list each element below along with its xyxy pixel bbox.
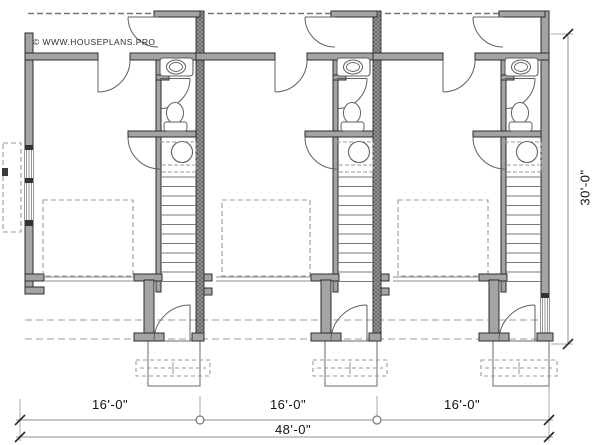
- right-window: [541, 293, 549, 339]
- entry-stoop: [313, 341, 387, 386]
- left-windows: [25, 145, 33, 226]
- unit-2: [196, 11, 387, 386]
- garage-door: [393, 277, 479, 281]
- dim-total-width: 48'-0": [253, 422, 333, 437]
- toilet-icon: [509, 103, 532, 132]
- toilet-icon: [164, 103, 187, 132]
- watermark: © WWW.HOUSEPLANS.PRO: [33, 37, 155, 47]
- water-heater-icon: [505, 142, 541, 173]
- unit-3: [373, 11, 557, 386]
- toilet-icon: [341, 103, 364, 132]
- garage-door: [44, 277, 134, 281]
- unit-1: [25, 11, 210, 386]
- party-wall-2: [373, 11, 381, 341]
- closet-door: [305, 17, 335, 47]
- utility-door: [473, 137, 505, 169]
- sink-icon: [337, 58, 370, 76]
- utility-door: [128, 137, 160, 169]
- garage-door: [216, 277, 311, 281]
- water-heater-icon: [160, 142, 196, 173]
- rear-room-door: [275, 60, 307, 92]
- sink-icon: [505, 58, 538, 76]
- stairs: [338, 177, 373, 282]
- floor-plan-page: © WWW.HOUSEPLANS.PRO 16'-0" 16'-0" 16'-0…: [0, 0, 600, 445]
- stairs: [506, 177, 541, 282]
- rear-room-door: [443, 60, 475, 92]
- utility-door: [305, 137, 337, 169]
- dim-unit-3-width: 16'-0": [422, 397, 502, 412]
- water-heater-icon: [337, 142, 373, 173]
- rear-room-door: [98, 60, 130, 92]
- floor-plan-drawing: [0, 0, 600, 445]
- dim-unit-1-width: 16'-0": [70, 397, 150, 412]
- stairs: [161, 177, 196, 282]
- dimension-lines: [15, 29, 573, 442]
- background-lines: [2, 143, 549, 339]
- exterior-walls: [25, 11, 549, 341]
- closet-door: [473, 17, 503, 47]
- entry-stoop: [481, 341, 557, 386]
- dim-unit-2-width: 16'-0": [248, 397, 328, 412]
- dim-total-depth: 30'-0": [578, 152, 593, 224]
- sink-icon: [160, 58, 193, 76]
- entry-stoop: [136, 341, 210, 386]
- party-wall-1: [196, 11, 204, 341]
- walls: [25, 11, 549, 341]
